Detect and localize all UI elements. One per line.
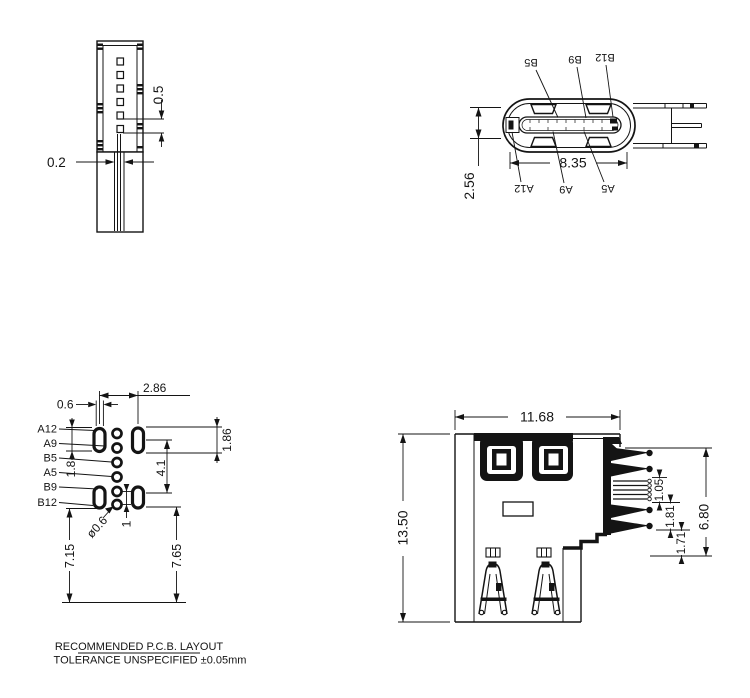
- dim-slot-width: 0.6: [57, 398, 118, 427]
- note-line1: RECOMMENDED P.C.B. LAYOUT: [55, 641, 224, 653]
- dim-seg-c-value: 1.71: [676, 532, 688, 554]
- dim-pad-length-right-value: 1.86: [220, 428, 234, 452]
- pin-label-b5: B5: [524, 56, 537, 68]
- pcb-label-a5: A5: [44, 467, 57, 479]
- dim-contact-zone: 6.80: [625, 448, 712, 556]
- side-view: 0.5 0.2: [47, 41, 166, 232]
- dim-rear-width: 11.68: [455, 409, 620, 431]
- dim-opening-height-value: 2.56: [461, 172, 477, 199]
- dim-opening-width: 8.35: [510, 152, 627, 171]
- dim-column-pitch: 2.86: [100, 381, 191, 424]
- pin-label-b12: B12: [595, 51, 615, 63]
- pin-label-a12: A12: [514, 182, 534, 194]
- dim-hole-dia: ø0.6: [84, 507, 114, 541]
- dim-rear-height-value: 13.50: [395, 510, 411, 545]
- dim-seg-b-value: 1.81: [665, 505, 677, 527]
- rear-center-slot: [503, 502, 533, 516]
- dim-row-pitch-value: 4.1: [154, 459, 168, 476]
- dim-hole-dia-value: ø0.6: [84, 513, 111, 540]
- dim-column-pitch-value: 2.86: [143, 381, 167, 395]
- dim-pad-pitch-value: 0.5: [151, 86, 166, 105]
- dim-segments: 1.05 1.81 1.71: [652, 470, 690, 565]
- rear-leg-right: [532, 562, 560, 615]
- pcb-pads: [94, 428, 144, 509]
- dim-pad-length-left: 1.8: [64, 418, 92, 477]
- pcb-label-a9: A9: [44, 438, 57, 450]
- usb-c-connector-drawing: 0.5 0.2: [0, 0, 750, 698]
- note-line2: TOLERANCE UNSPECIFIED ±0.05mm: [54, 655, 247, 667]
- dim-contact-zone-value: 6.80: [697, 504, 712, 530]
- dim-rear-height: 13.50: [395, 434, 451, 622]
- pcb-label-b5: B5: [44, 453, 57, 465]
- dim-lead-width-value: 0.2: [47, 155, 66, 170]
- front-view-tongue: [506, 117, 621, 133]
- dim-rear-width-value: 11.68: [520, 409, 554, 425]
- dim-slot-width-value: 0.6: [57, 398, 74, 412]
- rear-shield-band: [474, 433, 622, 483]
- pin-label-a5: A5: [601, 182, 614, 194]
- dim-edge-right-value: 7.65: [170, 544, 184, 568]
- rear-view: 11.68 13.50 6.80 1.: [395, 409, 713, 623]
- dim-edge-left-value: 7.15: [63, 544, 77, 568]
- rear-spring-contacts: [603, 446, 653, 535]
- pcb-label-a12: A12: [37, 424, 57, 436]
- dim-seg-a-value: 1.05: [654, 479, 666, 501]
- front-view-bracket: [633, 104, 707, 149]
- pin-label-a9: A9: [559, 183, 572, 195]
- dim-pad-length-left-value: 1.8: [64, 460, 78, 477]
- dim-row-pitch: 4.1: [146, 440, 172, 493]
- dim-opening-height: 2.56: [461, 108, 501, 200]
- pcb-layout-view: A12 A9 B5 A5 B9 B12 0.6 2.86: [37, 381, 234, 603]
- pcb-label-b9: B9: [44, 482, 57, 494]
- title-notes: RECOMMENDED P.C.B. LAYOUT TOLERANCE UNSP…: [54, 641, 247, 667]
- dim-opening-width-value: 8.35: [559, 155, 586, 171]
- rear-solder-windows: [486, 548, 551, 557]
- rear-leg-left: [479, 562, 507, 615]
- pcb-label-b12: B12: [37, 497, 57, 509]
- pin-label-b9: B9: [568, 53, 581, 65]
- dim-hole-pitch-value: 1: [120, 520, 134, 527]
- drawing-sheet: 0.5 0.2: [0, 0, 750, 698]
- front-view: B5 B9 B12 A12 A9 A5 8.35 2.56: [461, 51, 707, 200]
